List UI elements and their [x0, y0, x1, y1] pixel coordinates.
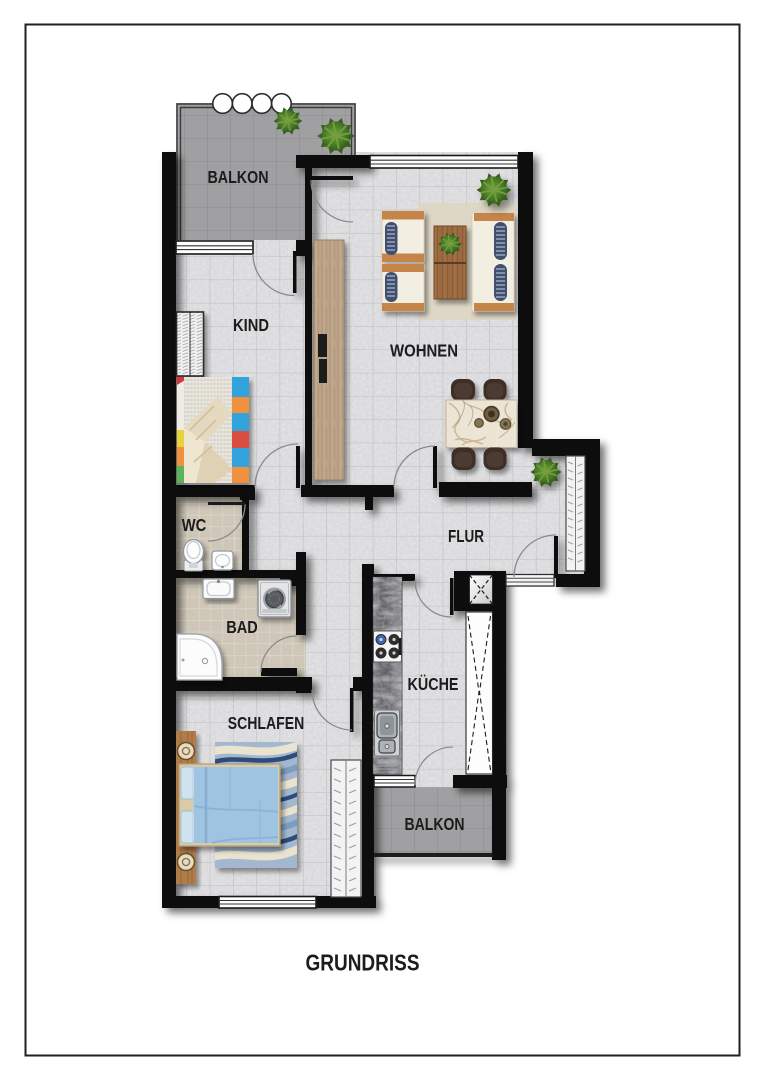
- svg-text:SCHLAFEN: SCHLAFEN: [228, 713, 305, 733]
- svg-text:BALKON: BALKON: [208, 167, 269, 187]
- svg-text:BAD: BAD: [226, 617, 258, 637]
- svg-text:BALKON: BALKON: [405, 814, 465, 834]
- svg-text:WOHNEN: WOHNEN: [390, 341, 458, 361]
- svg-text:WC: WC: [182, 515, 207, 535]
- svg-text:KIND: KIND: [233, 315, 269, 335]
- svg-text:GRUNDRISS: GRUNDRISS: [306, 950, 420, 976]
- svg-text:KÜCHE: KÜCHE: [408, 674, 459, 694]
- svg-text:FLUR: FLUR: [448, 526, 484, 546]
